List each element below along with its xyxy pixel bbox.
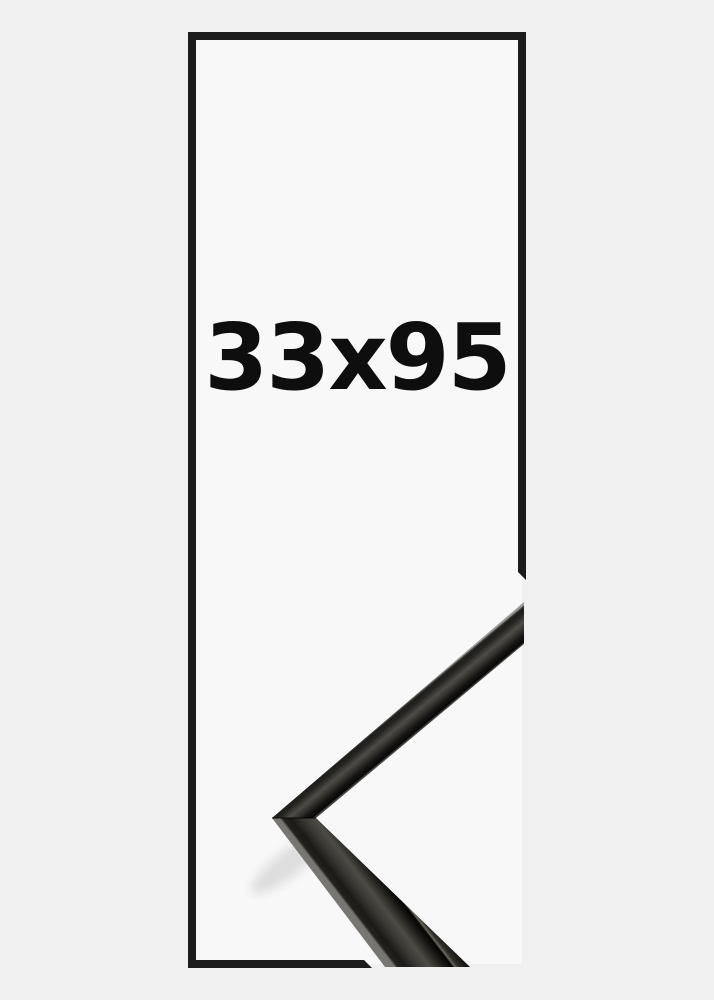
- frame-interior: [192, 36, 522, 964]
- frame-size-diagram: [0, 0, 714, 1000]
- frame-outline-left: [188, 32, 196, 968]
- frame-size-label: 33x95: [188, 312, 526, 404]
- frame-outline-bottom: [188, 960, 372, 968]
- frame-outline-right: [518, 32, 526, 580]
- product-image: 33x95: [0, 0, 714, 1000]
- frame-outline-top: [188, 32, 526, 40]
